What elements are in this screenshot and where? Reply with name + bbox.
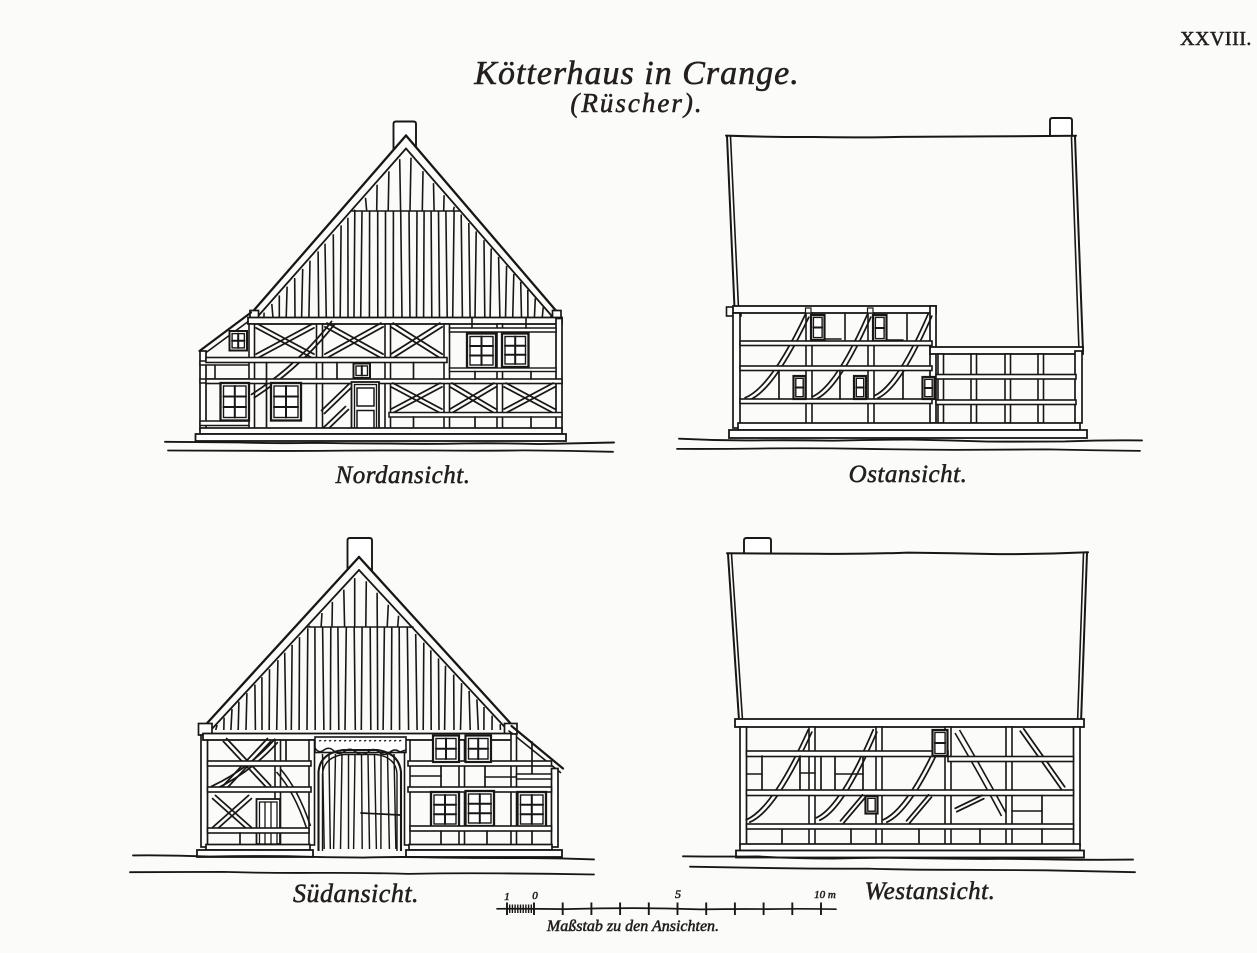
svg-text:Ostansicht.: Ostansicht. (849, 461, 968, 488)
svg-text:10 m: 10 m (814, 889, 836, 901)
svg-text:5: 5 (675, 887, 681, 901)
svg-text:Südansicht.: Südansicht. (293, 879, 419, 908)
svg-text:(Rüscher).: (Rüscher). (570, 88, 703, 118)
svg-text:XXVIII.: XXVIII. (1180, 28, 1252, 50)
svg-text:Maßstab zu den Ansichten.: Maßstab zu den Ansichten. (546, 918, 719, 935)
svg-text:1: 1 (504, 891, 510, 903)
svg-text:Kötterhaus in Crange.: Kötterhaus in Crange. (473, 55, 799, 92)
svg-text:0: 0 (532, 890, 538, 902)
svg-text:Westansicht.: Westansicht. (865, 878, 996, 905)
svg-text:Nordansicht.: Nordansicht. (335, 462, 471, 489)
